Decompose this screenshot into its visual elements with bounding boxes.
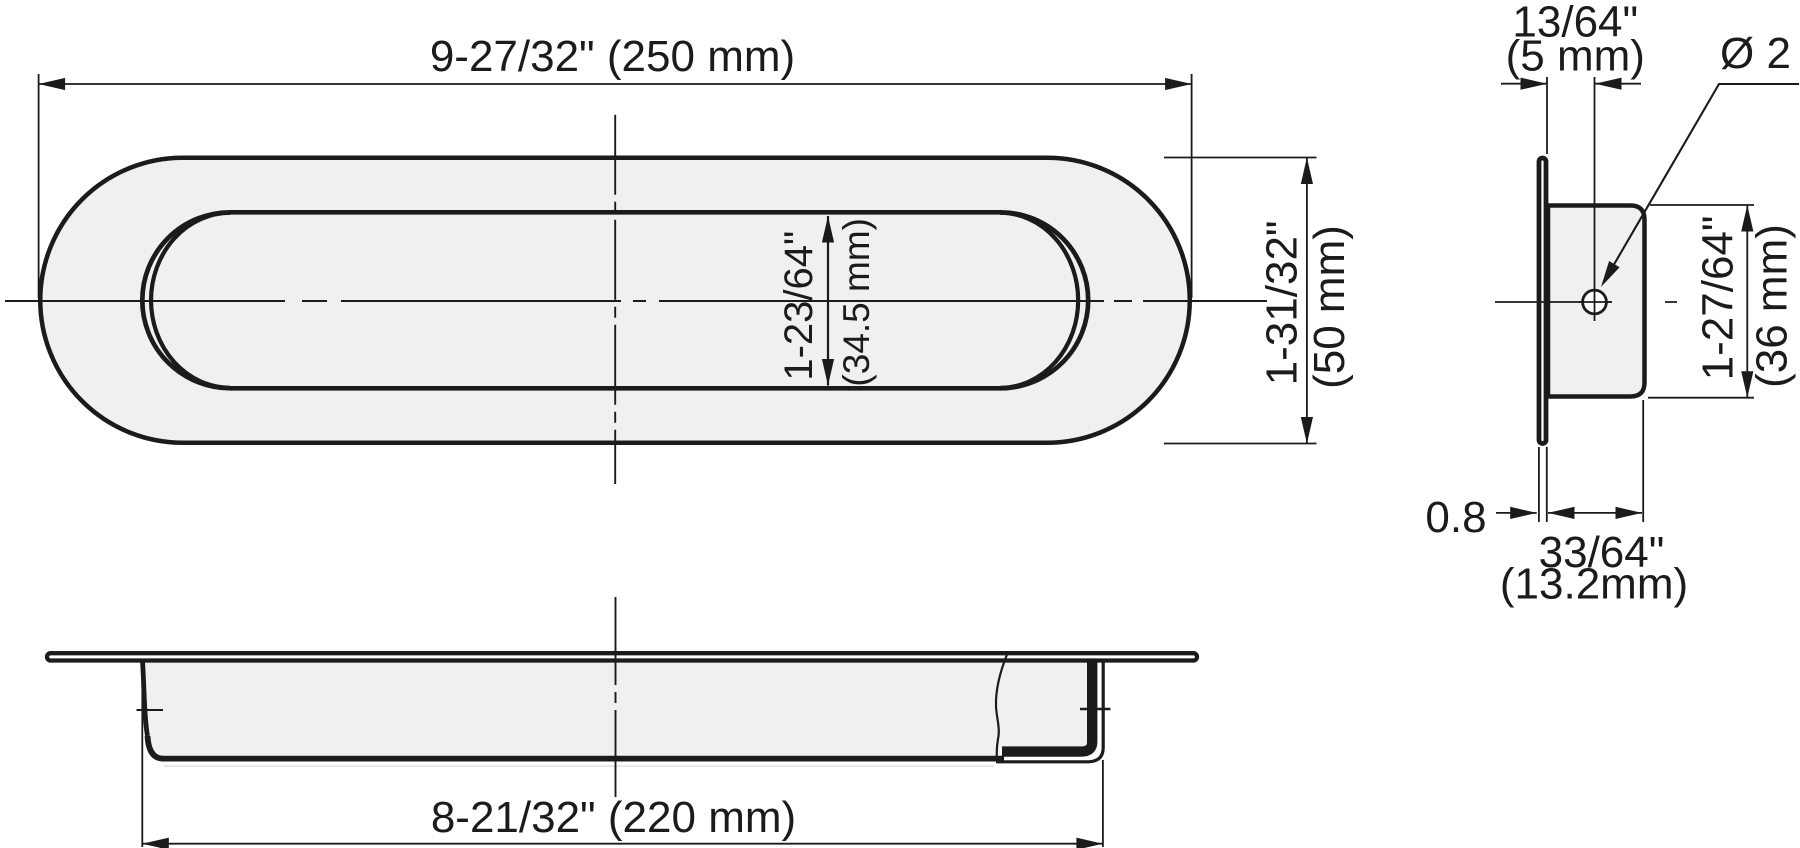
svg-text:0.8: 0.8 [1425, 493, 1486, 542]
svg-text:1-23/64": 1-23/64" [777, 231, 821, 381]
svg-text:(50 mm): (50 mm) [1305, 225, 1354, 389]
svg-text:(34.5 mm): (34.5 mm) [836, 218, 877, 387]
svg-text:9-27/32" (250 mm): 9-27/32" (250 mm) [430, 32, 795, 81]
svg-text:(13.2mm): (13.2mm) [1500, 560, 1688, 609]
svg-text:(5 mm): (5 mm) [1506, 32, 1645, 81]
svg-text:8-21/32" (220 mm): 8-21/32" (220 mm) [431, 793, 796, 842]
svg-text:(36 mm): (36 mm) [1748, 224, 1797, 388]
svg-text:Ø 2: Ø 2 [1720, 29, 1791, 78]
svg-text:1-31/32": 1-31/32" [1258, 220, 1307, 385]
svg-text:1-27/64": 1-27/64" [1693, 215, 1742, 380]
